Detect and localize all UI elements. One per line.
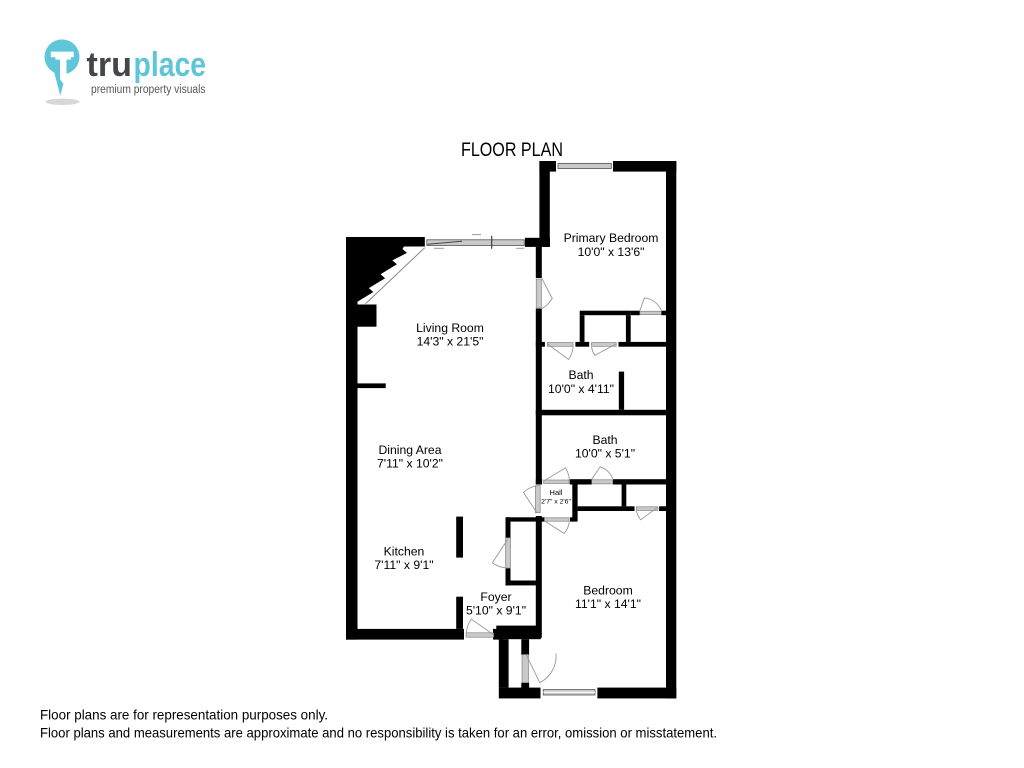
svg-text:Foyer: Foyer	[480, 590, 511, 604]
svg-text:Bath: Bath	[568, 368, 593, 382]
svg-text:10'0" x 4'11": 10'0" x 4'11"	[548, 382, 614, 396]
svg-text:7'11" x 9'1": 7'11" x 9'1"	[374, 558, 433, 572]
svg-text:14'3" x 21'5": 14'3" x 21'5"	[417, 335, 484, 349]
svg-text:Bath: Bath	[592, 433, 617, 447]
svg-text:tru: tru	[87, 46, 133, 84]
svg-text:premium property visuals: premium property visuals	[91, 84, 206, 96]
svg-text:2'7" x 2'6": 2'7" x 2'6"	[541, 499, 571, 506]
svg-text:5'10" x 9'1": 5'10" x 9'1"	[466, 604, 526, 618]
svg-text:10'0" x 5'1": 10'0" x 5'1"	[575, 447, 635, 461]
svg-text:Living Room: Living Room	[416, 321, 484, 335]
svg-text:Primary Bedroom: Primary Bedroom	[564, 231, 659, 245]
svg-text:Kitchen: Kitchen	[384, 545, 425, 559]
svg-text:FLOOR PLAN: FLOOR PLAN	[461, 139, 563, 161]
svg-text:10'0" x 13'6": 10'0" x 13'6"	[578, 245, 645, 259]
svg-text:place: place	[134, 46, 207, 84]
svg-text:7'11" x 10'2": 7'11" x 10'2"	[377, 457, 443, 471]
svg-text:11'1" x 14'1": 11'1" x 14'1"	[575, 597, 641, 611]
svg-text:Floor plans are for representa: Floor plans are for representation purpo…	[40, 708, 328, 723]
svg-text:Hall: Hall	[550, 488, 563, 497]
svg-text:Bedroom: Bedroom	[583, 584, 632, 598]
svg-text:Floor plans and measurements a: Floor plans and measurements are approxi…	[40, 726, 717, 741]
svg-text:Dining Area: Dining Area	[378, 443, 441, 457]
